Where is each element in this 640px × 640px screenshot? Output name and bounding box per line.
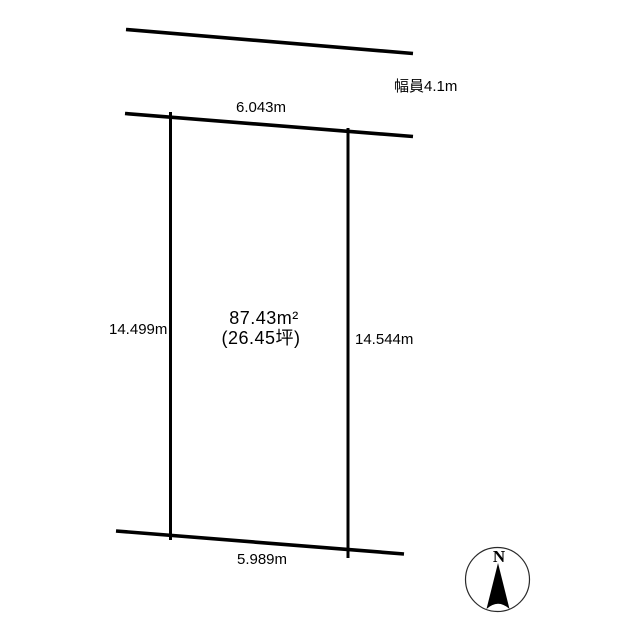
compass-needle-icon [487, 563, 510, 609]
area-tsubo-label: (26.45坪) [221, 329, 300, 347]
diagram-lines [0, 0, 640, 640]
compass-north-label: N [493, 548, 505, 565]
frontage-dimension-label: 6.043m [236, 100, 286, 115]
road-upper-edge-line [126, 30, 413, 54]
area-sqm-label: 87.43m² [229, 309, 299, 327]
road-lower-edge-line [125, 114, 413, 137]
left-side-dimension-label: 14.499m [109, 322, 167, 337]
road-width-label: 幅員4.1m [394, 79, 457, 94]
rear-dimension-label: 5.989m [237, 552, 287, 567]
right-side-dimension-label: 14.544m [355, 332, 413, 347]
plot-survey-diagram: 幅員4.1m 6.043m 14.499m 87.43m² (26.45坪) 1… [0, 0, 640, 640]
